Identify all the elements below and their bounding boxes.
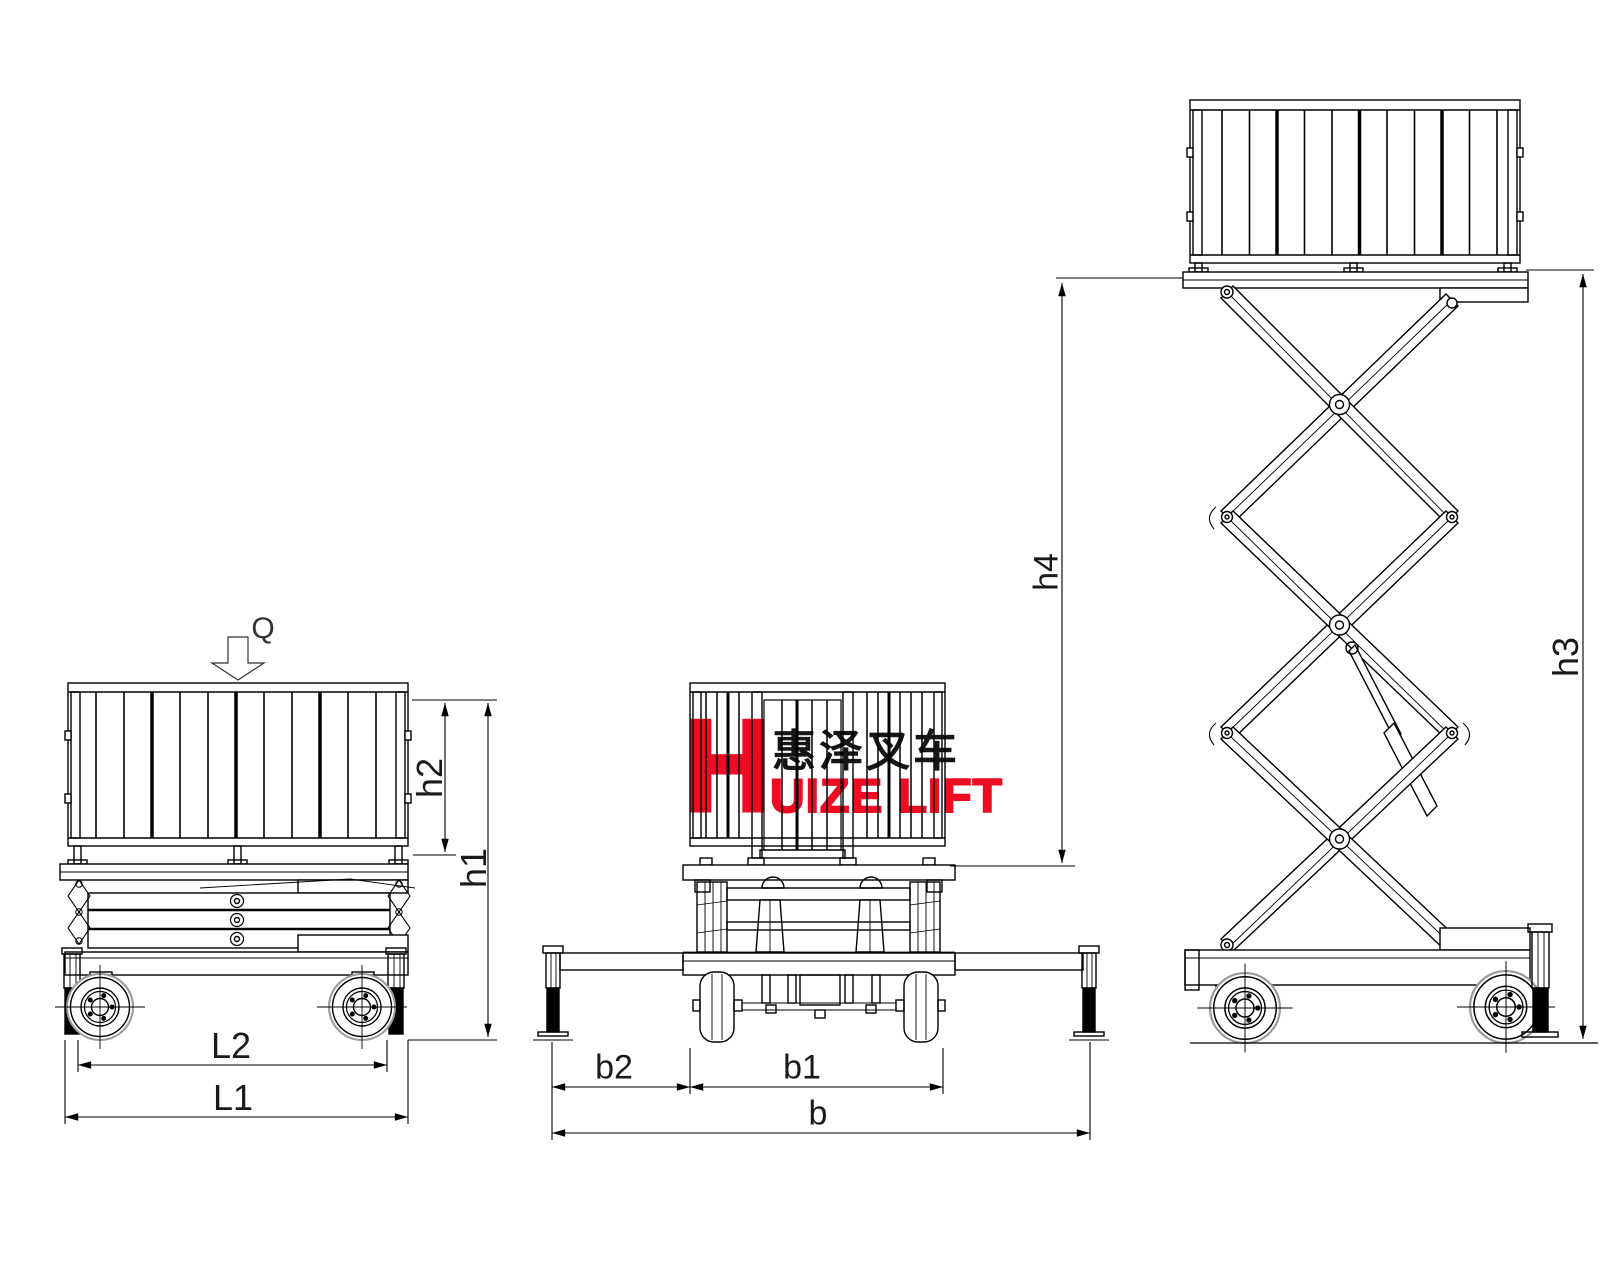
outrigger-jack-front-right [1069, 946, 1109, 1040]
outrigger-beam-right [955, 953, 1083, 970]
chassis-front [742, 975, 896, 1018]
load-label: Q [251, 612, 274, 646]
front-view-lowered [533, 683, 1109, 1042]
scissor-mechanism-raised [1209, 286, 1469, 951]
dim-label-h2: h2 [409, 758, 451, 798]
outrigger-jack-front-left [533, 946, 573, 1040]
dim-label-h3: h3 [1545, 637, 1587, 677]
dim-label-h4: h4 [1028, 553, 1067, 591]
base-frame-front [683, 953, 955, 975]
scissor-front [697, 877, 940, 952]
wheel [317, 965, 407, 1049]
outrigger-beam-left [560, 953, 683, 970]
side-view-raised [1183, 100, 1598, 1053]
wheel [55, 965, 145, 1049]
dim-label-b: b [809, 1095, 828, 1134]
dim-label-l2: L2 [211, 1025, 251, 1067]
platform-cage-raised [1183, 100, 1528, 302]
dim-label-h1: h1 [453, 848, 495, 888]
technical-drawing-sheet: H 惠泽叉车 UIZE LIFT [0, 0, 1600, 1280]
dim-label-b2: b2 [595, 1049, 633, 1088]
platform-cage-front [690, 683, 945, 865]
dim-label-b1: b1 [783, 1049, 821, 1088]
platform-floor-side [60, 864, 415, 893]
dim-label-l1: L1 [213, 1077, 253, 1119]
side-view-lowered [55, 637, 415, 1049]
wheel-front-left [693, 972, 742, 1042]
wheel-front-right [896, 972, 945, 1042]
platform-cage-side [65, 683, 411, 864]
